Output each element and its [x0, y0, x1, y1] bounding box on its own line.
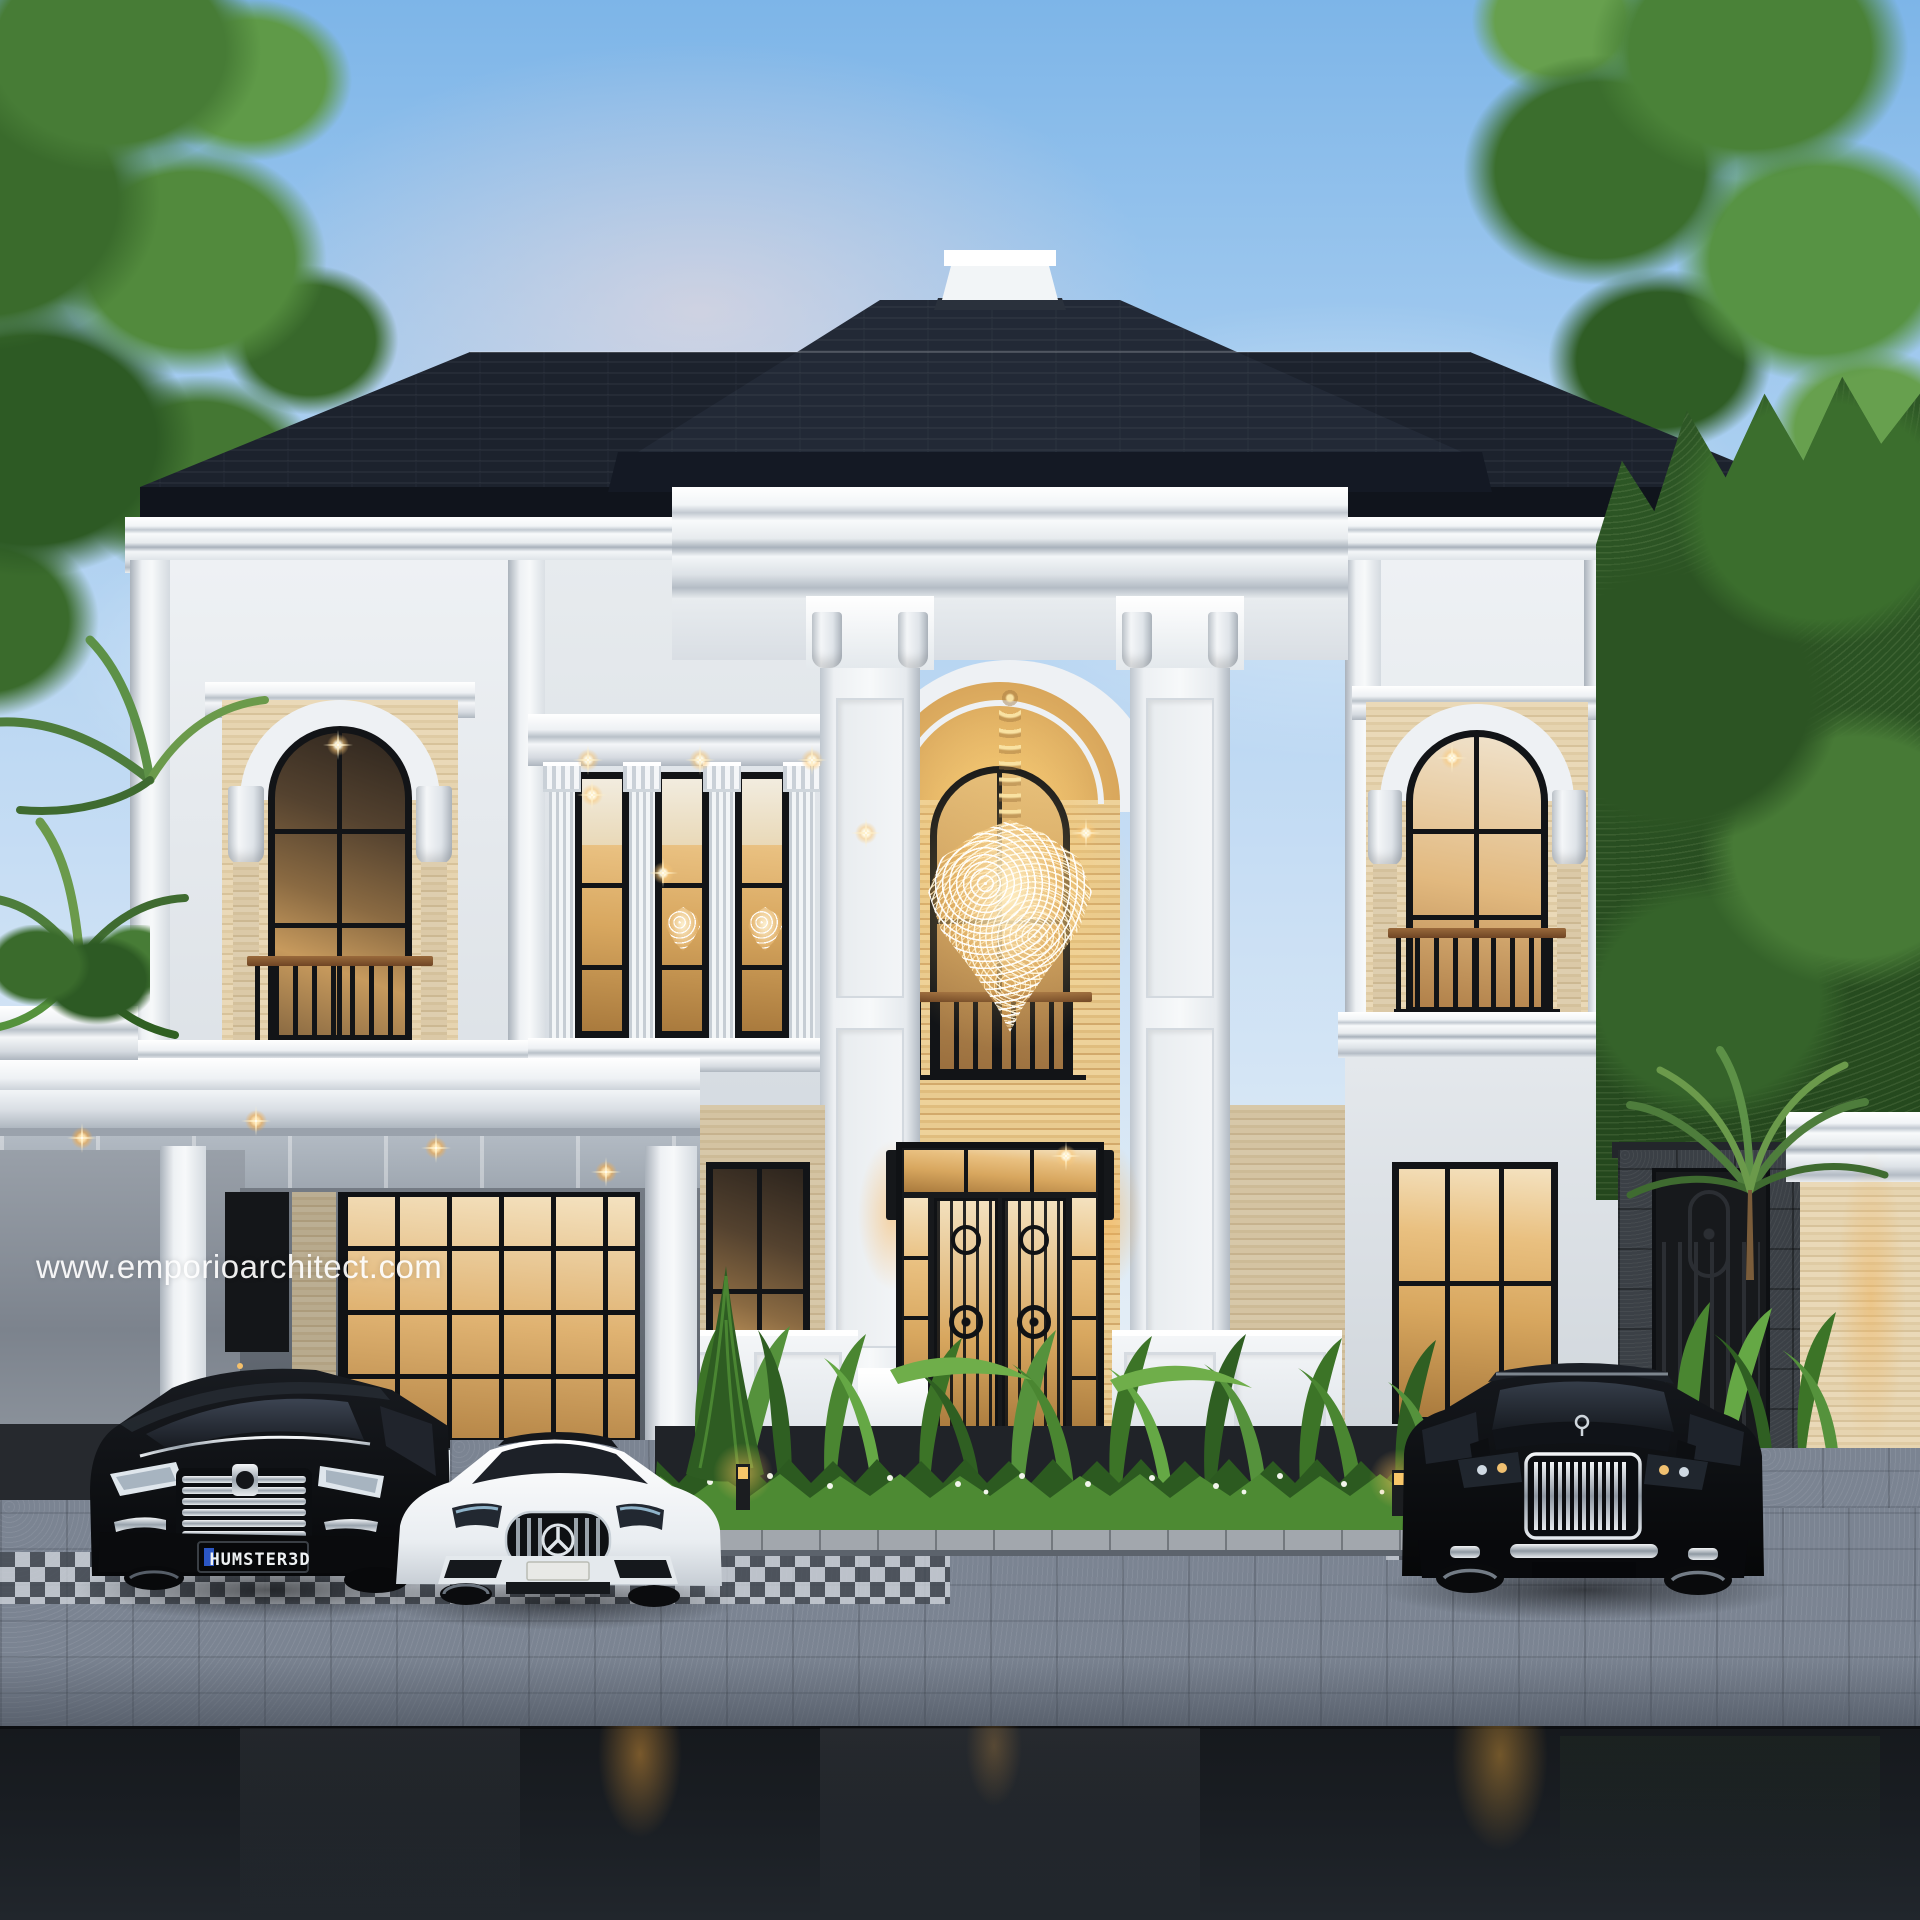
- right-balcony-slab: [1338, 1012, 1630, 1058]
- left-arch-corbel: [416, 786, 452, 864]
- right-arch-pier: [1557, 864, 1581, 1036]
- pilaster-panel: [836, 698, 904, 998]
- roof-finial-cap: [944, 250, 1056, 266]
- license-plate-text: HUMSTER3D: [209, 1550, 310, 1570]
- portico-entablature: [672, 487, 1348, 599]
- road-reflection-house: [240, 1728, 520, 1918]
- window-muntin: [1413, 915, 1541, 920]
- window-muntin: [275, 923, 405, 928]
- window-muntin: [582, 883, 622, 888]
- center-roof-fascia: [608, 452, 1492, 492]
- palm-right: [1600, 990, 1920, 1290]
- window-muntin: [275, 829, 405, 834]
- railing-bars: [1396, 938, 1558, 1009]
- interior-chandelier: [748, 907, 782, 951]
- interior-chandelier: [666, 907, 700, 951]
- watermark-text: www.emporioarchitect.com: [36, 1248, 442, 1286]
- window-interior-ceiling: [742, 779, 782, 845]
- car-sedan-white: [386, 1388, 730, 1618]
- window-interior-ceiling: [662, 779, 702, 845]
- transom-bar: [1030, 1150, 1034, 1192]
- capital-corbel: [1122, 612, 1152, 668]
- portico-frieze: [672, 598, 1348, 660]
- right-arch-corbel: [1368, 790, 1402, 866]
- bay-pilaster: [629, 792, 655, 1040]
- window-muntin: [582, 965, 622, 970]
- railing-bars: [255, 966, 425, 1040]
- window-muntin: [742, 883, 782, 888]
- bay-pilaster: [789, 792, 815, 1040]
- window-muntin: [742, 965, 782, 970]
- right-arch-corbel: [1552, 790, 1586, 866]
- architectural-render: HUMSTER3D: [0, 0, 1920, 1920]
- roof-finial: [942, 262, 1058, 300]
- railing-handrail: [1388, 928, 1566, 938]
- chandelier-chain: [999, 690, 1021, 826]
- driveway-fade: [0, 1655, 1920, 1727]
- tall-window-2: [655, 772, 709, 1038]
- driveway-patch: [1756, 1448, 1920, 1508]
- capital-corbel: [898, 612, 928, 668]
- left-wing-corner-pilaster: [508, 560, 548, 1065]
- bay-pilaster-capital: [783, 762, 821, 792]
- bay-pilaster-capital: [703, 762, 741, 792]
- window-interior-ceiling: [582, 779, 622, 845]
- bay-pilaster: [549, 792, 575, 1040]
- chandelier-body: [928, 820, 1092, 1032]
- road-reflection-trees: [1560, 1736, 1880, 1896]
- palm-left: [0, 600, 280, 1120]
- window-muntin: [1413, 829, 1541, 834]
- bay-pilaster: [709, 792, 735, 1040]
- railing-base: [914, 1075, 1086, 1080]
- crystal-chandelier: [928, 690, 1092, 1040]
- bay-pilaster-capital: [543, 762, 581, 792]
- car-suv-black: [1392, 1326, 1774, 1602]
- right-balcony-railing: [1394, 928, 1560, 1014]
- capital-corbel: [812, 612, 842, 668]
- road-reflection-house: [820, 1728, 1200, 1918]
- tall-window-3: [735, 772, 789, 1038]
- garden-bed: [640, 1230, 1480, 1570]
- door-transom: [904, 1150, 1096, 1192]
- transom-bar: [964, 1150, 968, 1192]
- tall-window-1: [575, 772, 629, 1038]
- window-muntin: [662, 965, 702, 970]
- capital-corbel: [1208, 612, 1238, 668]
- pilaster-panel: [1146, 698, 1214, 998]
- window-muntin: [662, 883, 702, 888]
- bay-pilaster-capital: [623, 762, 661, 792]
- license-plate: HUMSTER3D: [198, 1542, 311, 1572]
